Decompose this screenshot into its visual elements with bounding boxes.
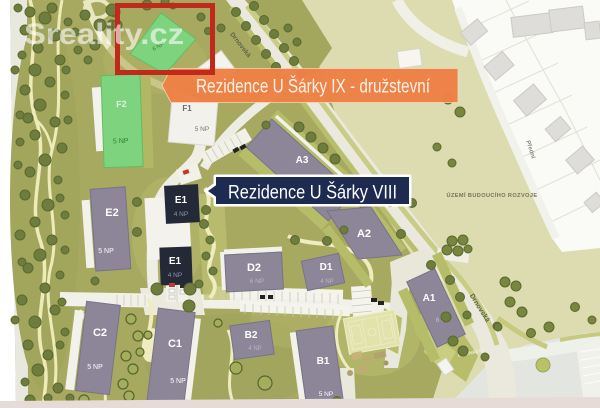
svg-text:Rezidence U Šárky VIII: Rezidence U Šárky VIII	[228, 182, 397, 204]
svg-text:4 NP: 4 NP	[320, 279, 333, 285]
svg-text:ÚZEMÍ BUDOUCÍHO ROZVOJE: ÚZEMÍ BUDOUCÍHO ROZVOJE	[447, 191, 538, 199]
svg-text:4 NP: 4 NP	[168, 272, 182, 279]
svg-text:F2: F2	[116, 99, 127, 109]
svg-text:5 NP: 5 NP	[170, 378, 186, 385]
svg-text:5 NP: 5 NP	[113, 138, 129, 146]
svg-text:A1: A1	[423, 293, 436, 304]
svg-text:E1: E1	[169, 256, 182, 267]
svg-text:5 NP: 5 NP	[98, 248, 114, 255]
svg-text:C1: C1	[168, 338, 182, 350]
svg-text:E1: E1	[175, 195, 188, 206]
svg-text:5 NP: 5 NP	[195, 126, 209, 133]
svg-text:A3: A3	[296, 155, 309, 166]
svg-text:5 NP: 5 NP	[319, 391, 333, 398]
svg-text:B2: B2	[245, 330, 258, 341]
svg-text:C2: C2	[93, 327, 107, 339]
svg-text:Rezidence U Šárky IX - družste: Rezidence U Šárky IX - družstevní	[196, 75, 430, 98]
svg-text:6 NP: 6 NP	[250, 278, 264, 285]
svg-text:D1: D1	[320, 262, 333, 273]
svg-text:4 NP: 4 NP	[174, 211, 188, 218]
svg-text:5 NP: 5 NP	[87, 364, 103, 371]
svg-text:Sreality.cz: Sreality.cz	[24, 18, 184, 51]
svg-text:E2: E2	[105, 207, 118, 219]
svg-text:A2: A2	[357, 228, 371, 240]
svg-text:F1: F1	[182, 104, 192, 113]
svg-text:D2: D2	[247, 262, 261, 274]
svg-text:B1: B1	[317, 356, 330, 367]
svg-text:4 NP: 4 NP	[248, 346, 261, 352]
